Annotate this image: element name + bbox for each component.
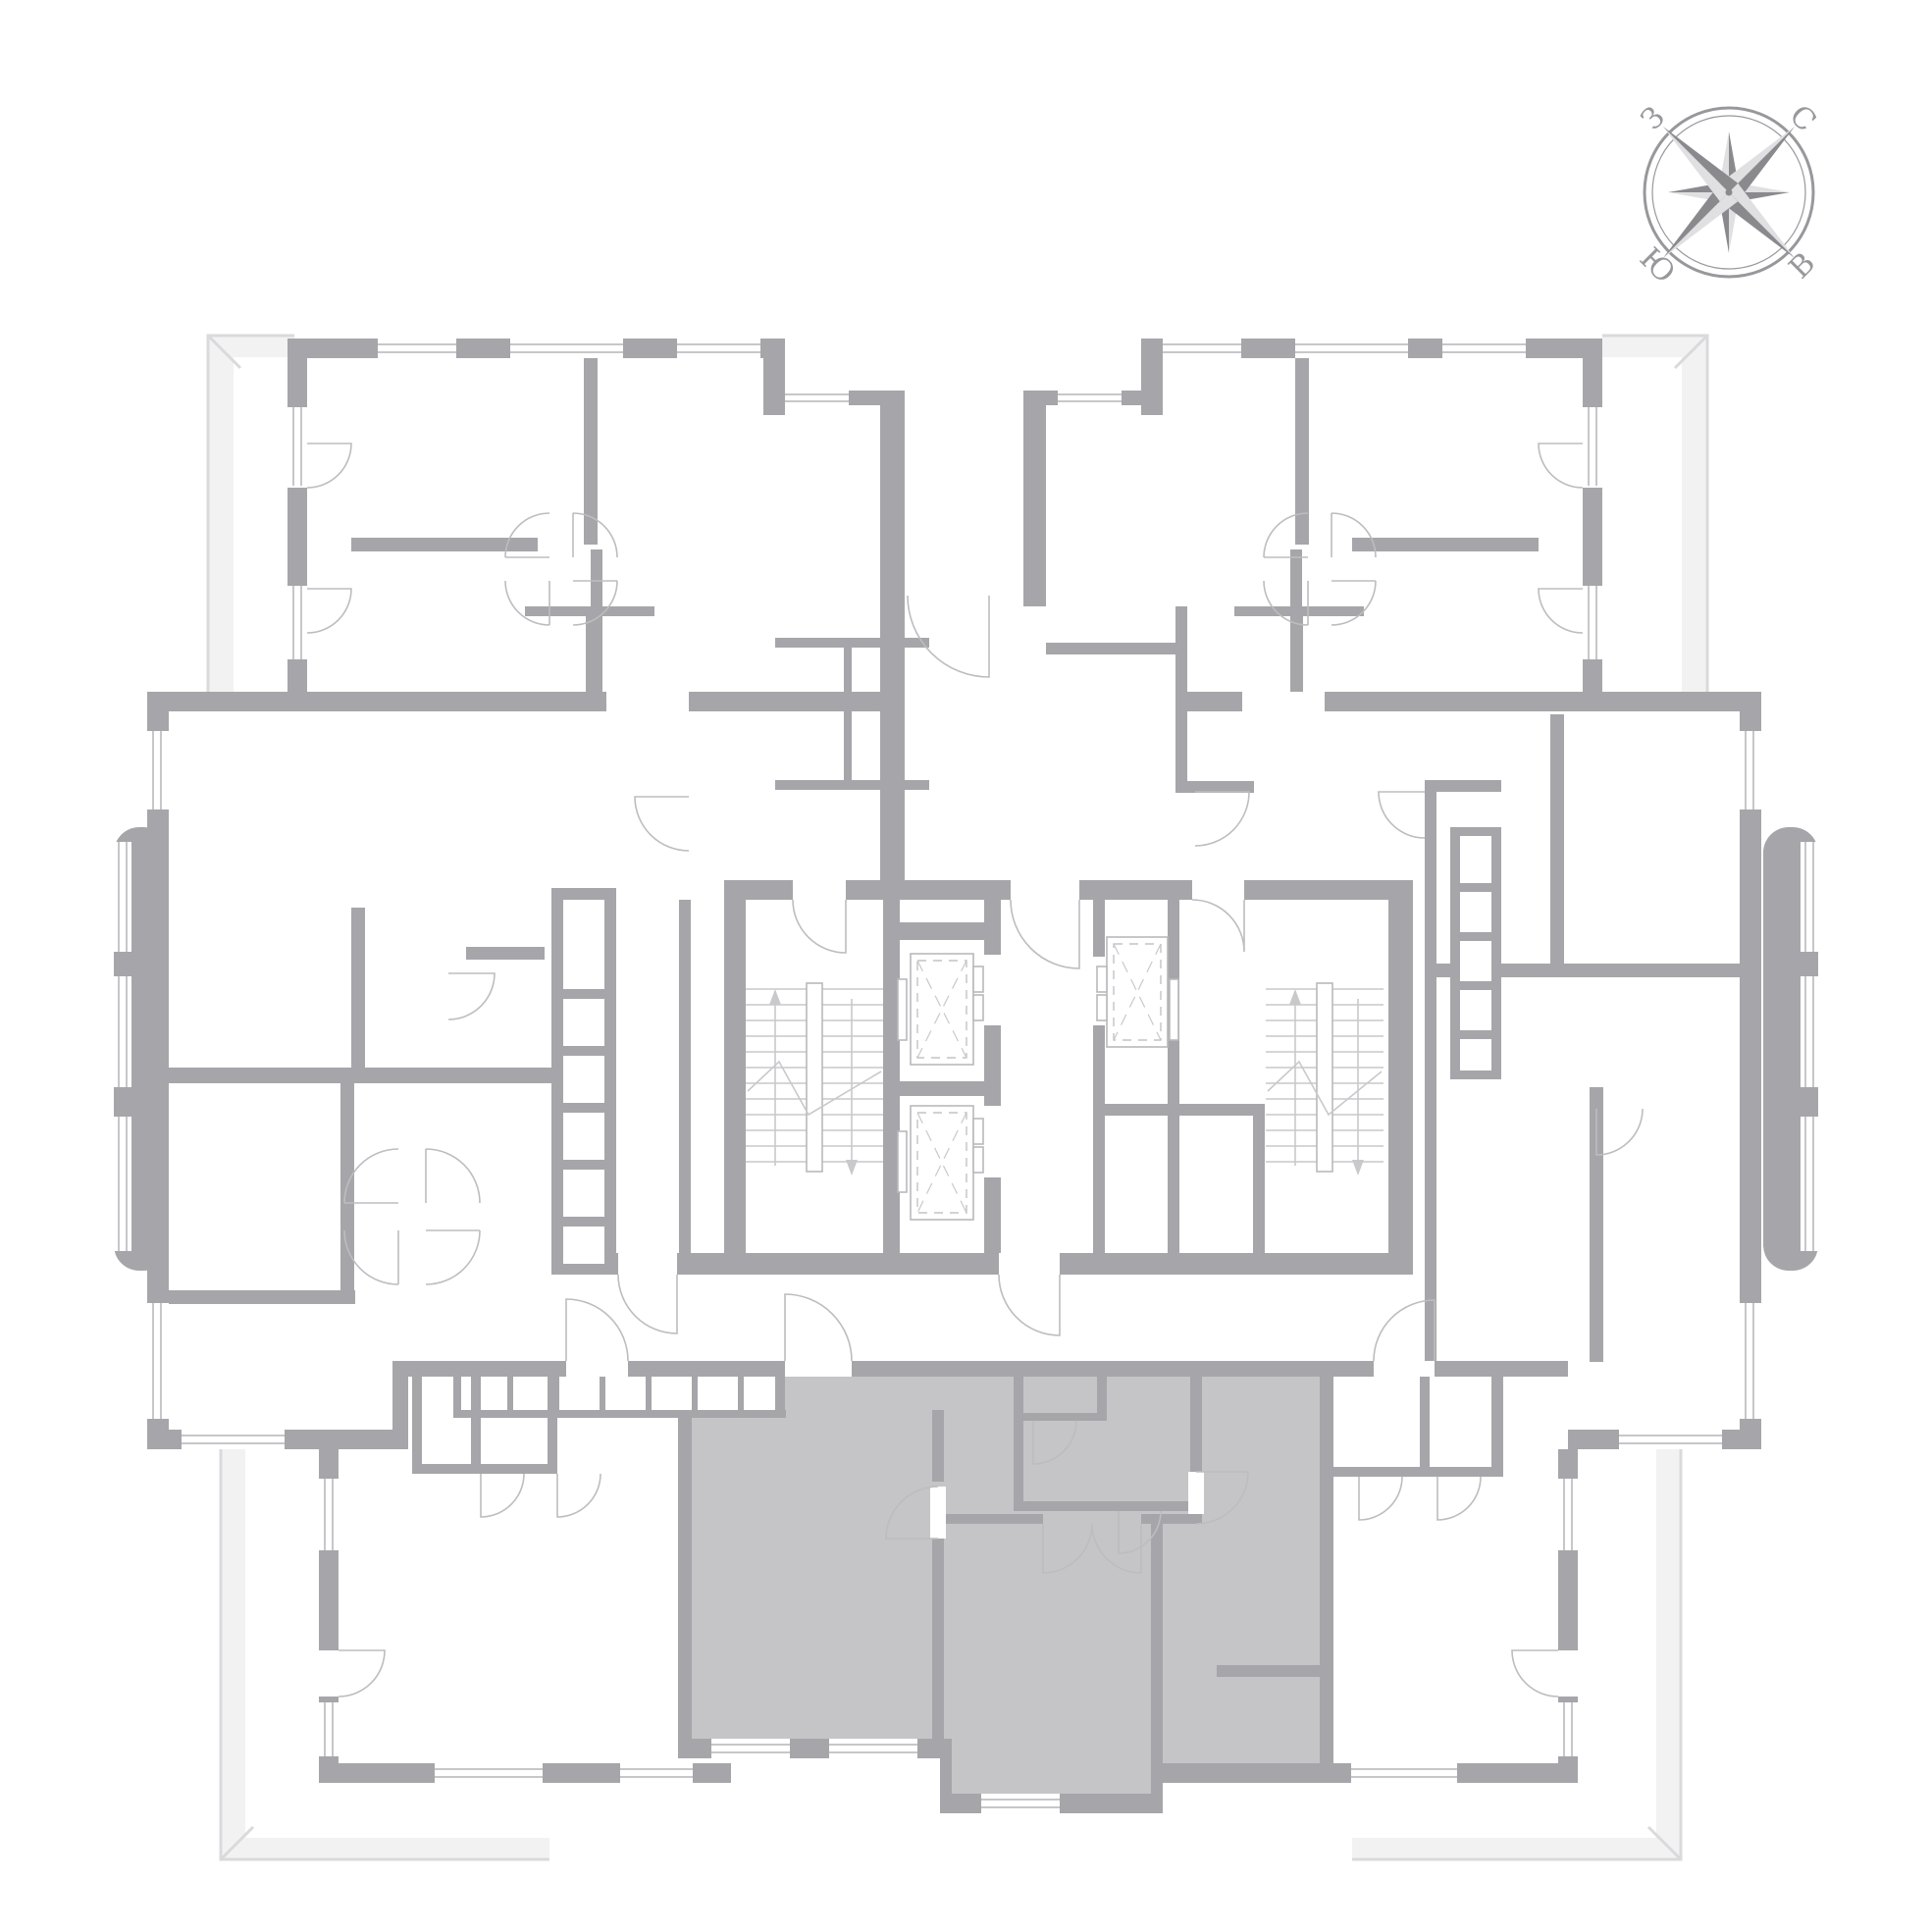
balcony-top-left <box>208 336 294 697</box>
compass-label-west: З <box>1635 100 1672 137</box>
stairwell-right <box>1266 983 1384 1175</box>
stair-left-door <box>793 900 846 953</box>
elevator-bank <box>898 937 1178 1220</box>
stairwell-left <box>746 983 883 1175</box>
stair-right-door <box>1192 900 1244 952</box>
compass-rose: С В Ю З <box>1633 98 1823 290</box>
entrance-corridor-door <box>908 596 989 677</box>
elevator-shaft-3 <box>1097 937 1178 1047</box>
balcony-bottom-right <box>1352 1449 1681 1859</box>
floor-plan-page: С В Ю З <box>0 0 1932 1932</box>
core-to-corridor-door <box>999 1275 1060 1335</box>
lobby-door <box>1011 900 1079 968</box>
elevator-shaft-1 <box>898 954 983 1065</box>
balcony-top-right <box>1602 336 1707 697</box>
elevator-shaft-2 <box>898 1106 983 1220</box>
compass-star <box>1654 118 1804 268</box>
highlighted-entrance-door <box>785 1294 852 1361</box>
floor-plan: С В Ю З <box>0 0 1932 1932</box>
